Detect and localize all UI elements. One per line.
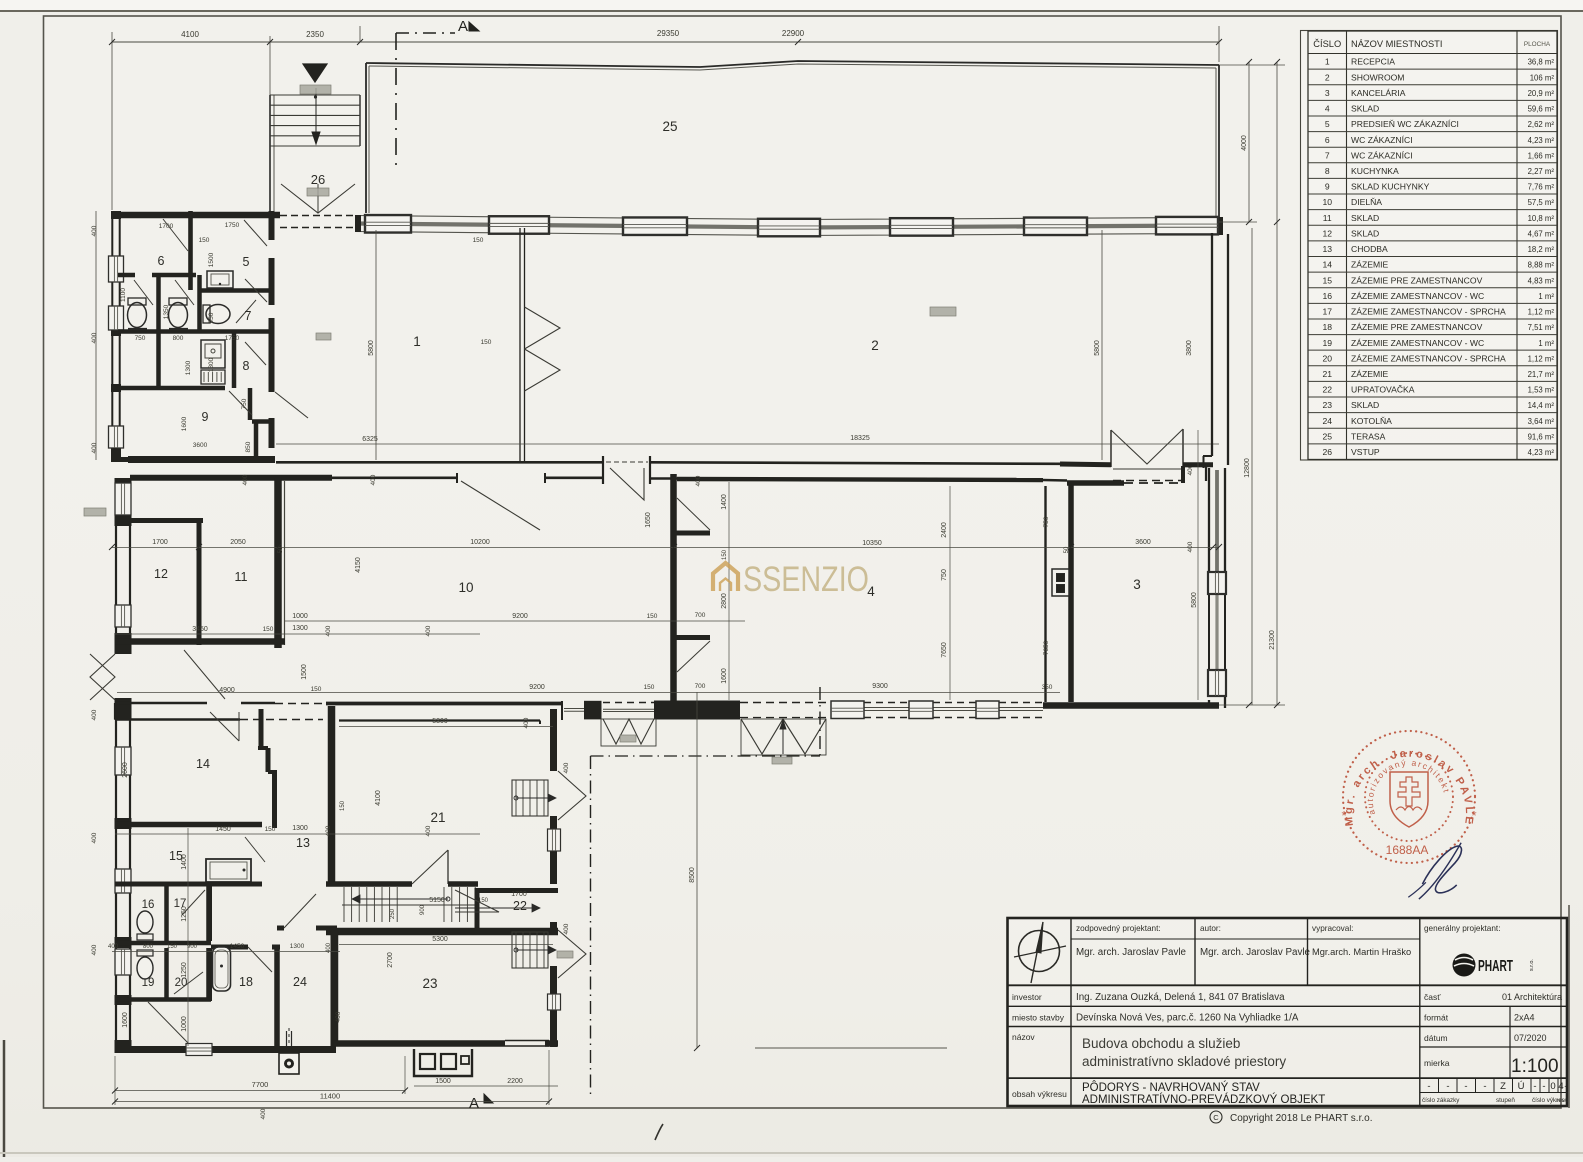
svg-text:9: 9 (202, 410, 209, 424)
svg-text:UPRATOVAČKA: UPRATOVAČKA (1351, 385, 1415, 395)
svg-text:1450: 1450 (215, 826, 231, 833)
svg-text:26: 26 (311, 172, 325, 187)
svg-text:vypracoval:: vypracoval: (1312, 924, 1353, 933)
svg-text:-: - (1464, 1081, 1467, 1092)
svg-text:3450: 3450 (192, 626, 208, 633)
svg-text:6: 6 (1325, 135, 1330, 145)
svg-text:12: 12 (154, 567, 168, 581)
svg-text:7: 7 (1325, 150, 1330, 160)
svg-text:-: - (1446, 1081, 1449, 1092)
svg-text:4: 4 (1325, 104, 1330, 114)
svg-text:50: 50 (1064, 546, 1070, 553)
svg-text:generálny projektant:: generálny projektant: (1424, 924, 1500, 933)
svg-text:4100: 4100 (181, 30, 199, 39)
svg-text:SKLAD: SKLAD (1351, 400, 1379, 410)
svg-text:20,9 m²: 20,9 m² (1528, 89, 1555, 98)
svg-text:18325: 18325 (850, 435, 870, 442)
svg-text:1,66 m²: 1,66 m² (1528, 151, 1555, 160)
svg-text:22: 22 (1322, 385, 1332, 395)
svg-text:číslo zákazky: číslo zákazky (1422, 1097, 1460, 1104)
svg-text:KUCHYNKA: KUCHYNKA (1351, 166, 1399, 176)
svg-text:150: 150 (340, 800, 346, 811)
svg-text:SKLAD: SKLAD (1351, 104, 1379, 114)
svg-text:KOTOLŇA: KOTOLŇA (1351, 416, 1392, 426)
svg-text:1: 1 (413, 334, 421, 349)
svg-text:1: 1 (1325, 57, 1330, 67)
svg-text:2700: 2700 (387, 952, 394, 968)
svg-text:1250: 1250 (181, 906, 188, 922)
svg-text:21,7 m²: 21,7 m² (1528, 370, 1555, 379)
svg-text:2xA4: 2xA4 (1514, 1013, 1535, 1023)
svg-text:2200: 2200 (507, 1078, 523, 1085)
svg-text:0: 0 (1550, 1081, 1555, 1092)
svg-text:24: 24 (1322, 416, 1332, 426)
svg-text:12800: 12800 (1244, 458, 1251, 478)
svg-text:PÔDORYS - NAVRHOVANÝ STAV: PÔDORYS - NAVRHOVANÝ STAV (1082, 1081, 1260, 1094)
svg-text:400: 400 (325, 625, 332, 636)
svg-text:5300: 5300 (432, 936, 448, 943)
svg-text:150: 150 (478, 898, 489, 904)
svg-text:1500: 1500 (208, 252, 215, 267)
svg-text:7,76 m²: 7,76 m² (1528, 183, 1555, 192)
svg-text:3800: 3800 (1186, 340, 1193, 356)
svg-text:106 m²: 106 m² (1530, 73, 1555, 82)
svg-text:Copyright 2018 Le PHART s.r.o.: Copyright 2018 Le PHART s.r.o. (1230, 1113, 1373, 1124)
svg-text:400: 400 (695, 475, 702, 486)
svg-text:Ing. Zuzana Ouzká, Delená 1, 8: Ing. Zuzana Ouzká, Delená 1, 841 07 Brat… (1076, 992, 1285, 1003)
svg-text:2,27 m²: 2,27 m² (1528, 167, 1555, 176)
svg-text:s.r.o.: s.r.o. (1529, 959, 1535, 971)
svg-text:Mgr. arch. Jaroslav Pavle: Mgr. arch. Jaroslav Pavle (1200, 947, 1311, 958)
svg-text:700: 700 (695, 683, 706, 690)
svg-text:rev: rev (1557, 1098, 1565, 1104)
svg-text:12: 12 (1322, 228, 1332, 238)
svg-text:400: 400 (91, 944, 98, 955)
svg-text:4150: 4150 (355, 557, 362, 573)
svg-text:ADMINISTRATÍVNO-PREVÁDZKOVÝ OB: ADMINISTRATÍVNO-PREVÁDZKOVÝ OBJEKT (1082, 1093, 1325, 1106)
svg-text:59,6 m²: 59,6 m² (1528, 105, 1555, 114)
svg-text:2600: 2600 (122, 762, 129, 778)
svg-text:20: 20 (175, 977, 188, 989)
svg-text:9200: 9200 (512, 613, 528, 620)
svg-text:SKLAD KUCHYNKY: SKLAD KUCHYNKY (1351, 182, 1430, 192)
svg-text:1:100: 1:100 (1511, 1056, 1559, 1077)
svg-text:9200: 9200 (529, 684, 545, 691)
svg-text:25: 25 (1322, 431, 1332, 441)
svg-text:SKLAD: SKLAD (1351, 228, 1379, 238)
svg-text:4100: 4100 (375, 790, 382, 806)
svg-text:SKLAD: SKLAD (1351, 213, 1379, 223)
svg-text:administratívno skladové pries: administratívno skladové priestory (1082, 1054, 1286, 1069)
svg-text:400: 400 (91, 225, 98, 236)
svg-text:zodpovedný projektant:: zodpovedný projektant: (1076, 924, 1161, 933)
svg-text:1700: 1700 (159, 223, 174, 230)
svg-text:400: 400 (326, 942, 332, 953)
svg-text:Mgr.arch. Martin Hraško: Mgr.arch. Martin Hraško (1312, 947, 1411, 957)
svg-text:36,8 m²: 36,8 m² (1528, 58, 1555, 67)
svg-text:11: 11 (235, 570, 248, 584)
svg-text:1300: 1300 (292, 825, 308, 832)
svg-text:ZÁZEMIE: ZÁZEMIE (1351, 369, 1389, 379)
svg-text:mierka: mierka (1424, 1058, 1450, 1068)
svg-text:formát: formát (1424, 1013, 1449, 1023)
svg-text:8500: 8500 (689, 867, 696, 883)
svg-text:autor:: autor: (1200, 924, 1221, 933)
svg-text:9300: 9300 (872, 683, 888, 690)
svg-text:150: 150 (265, 826, 276, 833)
svg-text:01 Architektúra: 01 Architektúra (1502, 992, 1562, 1002)
svg-text:1600: 1600 (122, 1012, 129, 1028)
svg-text:4,67 m²: 4,67 m² (1528, 229, 1555, 238)
svg-text:A: A (469, 1095, 479, 1112)
svg-text:1700: 1700 (511, 891, 527, 898)
svg-text:18: 18 (1322, 322, 1332, 332)
svg-text:4000: 4000 (1241, 135, 1248, 151)
svg-text:Ú: Ú (1518, 1081, 1525, 1092)
svg-text:SHOWROOM: SHOWROOM (1351, 72, 1404, 82)
svg-text:1400: 1400 (721, 494, 728, 510)
svg-text:2: 2 (871, 338, 879, 353)
svg-text:400: 400 (563, 762, 570, 773)
svg-text:1300: 1300 (185, 360, 192, 375)
svg-text:150: 150 (199, 237, 210, 244)
svg-text:400: 400 (425, 625, 432, 636)
svg-text:5: 5 (243, 255, 250, 269)
svg-text:1650: 1650 (645, 512, 652, 528)
svg-text:150: 150 (167, 944, 178, 950)
svg-text:14: 14 (196, 757, 210, 771)
svg-text:7,51 m²: 7,51 m² (1528, 323, 1555, 332)
svg-text:1 m²: 1 m² (1538, 339, 1554, 348)
svg-text:4,23 m²: 4,23 m² (1528, 136, 1555, 145)
svg-text:750: 750 (941, 569, 948, 581)
svg-text:-: - (1427, 1081, 1430, 1092)
svg-text:900: 900 (420, 904, 426, 915)
svg-text:5800: 5800 (1191, 592, 1198, 608)
svg-text:750: 750 (241, 398, 248, 409)
svg-text:1600: 1600 (721, 668, 728, 684)
svg-text:150: 150 (311, 686, 322, 693)
svg-text:-: - (1533, 1081, 1536, 1092)
svg-text:2,62 m²: 2,62 m² (1528, 120, 1555, 129)
svg-text:750: 750 (135, 335, 146, 342)
svg-text:názov: názov (1012, 1032, 1035, 1042)
svg-text:400: 400 (242, 474, 249, 485)
svg-text:8,88 m²: 8,88 m² (1528, 261, 1555, 270)
svg-text:1,12 m²: 1,12 m² (1528, 354, 1555, 363)
svg-text:400: 400 (425, 825, 432, 836)
svg-text:400: 400 (370, 474, 377, 485)
svg-text:400: 400 (108, 944, 119, 950)
svg-text:ZÁZEMIE ZAMESTNANCOV - SPRCHA: ZÁZEMIE ZAMESTNANCOV - SPRCHA (1351, 307, 1506, 317)
svg-text:5: 5 (1325, 119, 1330, 129)
svg-text:miesto stavby: miesto stavby (1012, 1013, 1065, 1023)
svg-text:KANCELÁRIA: KANCELÁRIA (1351, 88, 1406, 98)
svg-text:1000: 1000 (181, 1016, 188, 1032)
svg-text:SSENZIO: SSENZIO (743, 560, 869, 599)
svg-text:10: 10 (1322, 197, 1332, 207)
svg-text:1250: 1250 (181, 962, 188, 978)
svg-text:4900: 4900 (219, 687, 235, 694)
svg-text:2800: 2800 (721, 593, 728, 609)
svg-text:150: 150 (481, 339, 492, 346)
svg-text:Budova obchodu a služieb: Budova obchodu a služieb (1082, 1036, 1240, 1051)
svg-text:1688AA: 1688AA (1386, 843, 1429, 857)
svg-text:11: 11 (1323, 213, 1332, 223)
svg-text:29350: 29350 (657, 29, 680, 38)
svg-text:21300: 21300 (1269, 630, 1276, 650)
svg-text:ZÁZEMIE ZAMESTNANCOV - SPRCHA: ZÁZEMIE ZAMESTNANCOV - SPRCHA (1351, 353, 1506, 363)
svg-text:150: 150 (473, 237, 484, 244)
svg-text:150: 150 (644, 684, 655, 691)
svg-text:150: 150 (722, 549, 728, 560)
svg-text:10,8 m²: 10,8 m² (1528, 214, 1555, 223)
svg-text:CHODBA: CHODBA (1351, 244, 1388, 254)
svg-text:4,83 m²: 4,83 m² (1528, 276, 1555, 285)
svg-text:7650: 7650 (941, 642, 948, 658)
svg-text:1,53 m²: 1,53 m² (1528, 386, 1555, 395)
svg-text:8: 8 (243, 359, 250, 373)
svg-text:1400: 1400 (181, 854, 188, 870)
svg-text:950: 950 (208, 312, 215, 323)
svg-text:1450: 1450 (230, 943, 245, 950)
svg-text:WC ZÁKAZNÍCI: WC ZÁKAZNÍCI (1351, 150, 1413, 160)
svg-text:6325: 6325 (362, 436, 378, 443)
svg-text:22: 22 (513, 899, 527, 913)
svg-text:400: 400 (91, 332, 98, 343)
svg-text:*: * (1471, 808, 1476, 823)
svg-text:400: 400 (325, 825, 332, 836)
svg-text:ZÁZEMIE PRE ZAMESTNANCOV: ZÁZEMIE PRE ZAMESTNANCOV (1351, 322, 1483, 332)
svg-text:18: 18 (239, 975, 253, 989)
svg-text:ZÁZEMIE PRE ZAMESTNANCOV: ZÁZEMIE PRE ZAMESTNANCOV (1351, 275, 1483, 285)
svg-text:19: 19 (1322, 338, 1332, 348)
svg-text:4,23 m²: 4,23 m² (1528, 448, 1555, 457)
svg-text:5800: 5800 (1094, 340, 1101, 356)
svg-text:Devínska Nová Ves, parc.č. 126: Devínska Nová Ves, parc.č. 1260 Na Vyhli… (1076, 1013, 1299, 1024)
svg-text:8: 8 (1325, 166, 1330, 176)
svg-text:VSTUP: VSTUP (1351, 447, 1380, 457)
svg-text:DIELŇA: DIELŇA (1351, 197, 1382, 207)
svg-text:PHART: PHART (1478, 958, 1513, 975)
svg-text:11400: 11400 (320, 1092, 340, 1101)
svg-text:150: 150 (263, 626, 274, 633)
svg-text:3,64 m²: 3,64 m² (1528, 417, 1555, 426)
svg-text:7700: 7700 (252, 1080, 269, 1089)
svg-text:1100: 1100 (120, 288, 127, 302)
svg-text:9: 9 (1325, 182, 1330, 192)
svg-text:1300: 1300 (290, 943, 305, 950)
svg-text:3: 3 (1325, 88, 1330, 98)
svg-text:dátum: dátum (1424, 1033, 1448, 1043)
svg-text:5800: 5800 (368, 340, 375, 356)
svg-text:23: 23 (422, 976, 437, 991)
svg-text:A: A (458, 18, 468, 35)
svg-text:13: 13 (1322, 244, 1332, 254)
svg-text:13: 13 (296, 836, 310, 850)
svg-text:NÁZOV MIESTNOSTI: NÁZOV MIESTNOSTI (1351, 39, 1442, 49)
svg-text:ZÁZEMIE ZAMESTNANCOV - WC: ZÁZEMIE ZAMESTNANCOV - WC (1351, 338, 1484, 348)
svg-text:1750: 1750 (225, 222, 240, 229)
svg-text:400: 400 (1187, 541, 1194, 552)
svg-text:750: 750 (1043, 516, 1050, 527)
svg-text:7: 7 (245, 309, 252, 323)
svg-text:ZÁZEMIE: ZÁZEMIE (1351, 260, 1389, 270)
svg-text:*: * (1341, 808, 1346, 823)
svg-text:700: 700 (695, 612, 706, 619)
svg-text:PLOCHA: PLOCHA (1524, 41, 1551, 48)
svg-text:stupeň: stupeň (1496, 1097, 1515, 1104)
svg-text:7650: 7650 (1043, 640, 1050, 655)
svg-text:obsah výkresu: obsah výkresu (1012, 1089, 1067, 1099)
svg-text:10200: 10200 (470, 539, 490, 546)
svg-text:1500: 1500 (301, 664, 308, 680)
svg-text:3: 3 (1133, 577, 1141, 592)
svg-text:10: 10 (458, 580, 473, 595)
svg-text:1750: 1750 (225, 335, 240, 342)
svg-text:TERASA: TERASA (1351, 431, 1386, 441)
svg-text:07/2020: 07/2020 (1514, 1033, 1547, 1043)
svg-text:800: 800 (173, 335, 184, 342)
svg-text:21: 21 (430, 810, 445, 825)
svg-text:91,6 m²: 91,6 m² (1528, 432, 1555, 441)
svg-text:WC ZÁKAZNÍCI: WC ZÁKAZNÍCI (1351, 135, 1413, 145)
svg-text:-: - (1542, 1081, 1545, 1092)
svg-text:3600: 3600 (1135, 539, 1151, 546)
svg-text:350: 350 (1042, 684, 1053, 691)
svg-text:-: - (1564, 1081, 1567, 1092)
svg-text:3600: 3600 (193, 442, 208, 449)
svg-text:400: 400 (91, 442, 98, 453)
svg-text:2: 2 (1325, 72, 1330, 82)
svg-text:časť: časť (1424, 992, 1441, 1002)
svg-text:ČÍSLO: ČÍSLO (1313, 39, 1341, 49)
svg-text:22900: 22900 (782, 29, 805, 38)
svg-text:900: 900 (187, 944, 198, 950)
svg-text:24: 24 (293, 975, 307, 989)
svg-text:-: - (1483, 1081, 1486, 1092)
svg-text:400: 400 (523, 717, 530, 728)
svg-text:1000: 1000 (292, 613, 308, 620)
svg-text:800: 800 (143, 944, 154, 950)
svg-text:1300: 1300 (208, 357, 215, 372)
svg-text:PREDSIEŇ WC ZÁKAZNÍCI: PREDSIEŇ WC ZÁKAZNÍCI (1351, 119, 1459, 129)
svg-text:21: 21 (1322, 369, 1332, 379)
svg-text:250: 250 (390, 908, 396, 919)
svg-text:400: 400 (91, 832, 98, 843)
svg-text:1600: 1600 (181, 416, 188, 431)
svg-text:10350: 10350 (862, 540, 882, 547)
svg-text:15: 15 (1322, 275, 1332, 285)
svg-text:4: 4 (1558, 1081, 1563, 1092)
svg-text:26: 26 (1322, 447, 1332, 457)
svg-text:2050: 2050 (230, 539, 246, 546)
svg-text:investor: investor (1012, 992, 1042, 1002)
svg-text:400: 400 (260, 1108, 267, 1119)
svg-text:RECEPCIA: RECEPCIA (1351, 57, 1395, 67)
svg-text:1,12 m²: 1,12 m² (1528, 308, 1555, 317)
svg-text:150: 150 (647, 613, 658, 620)
svg-text:Z: Z (1500, 1081, 1506, 1092)
svg-text:57,5 m²: 57,5 m² (1528, 198, 1555, 207)
svg-text:50: 50 (278, 546, 284, 553)
svg-text:850: 850 (245, 441, 252, 452)
svg-text:400: 400 (563, 923, 570, 934)
svg-text:23: 23 (1322, 400, 1332, 410)
svg-text:14,4 m²: 14,4 m² (1528, 401, 1555, 410)
svg-text:1700: 1700 (152, 539, 168, 546)
svg-text:2350: 2350 (306, 30, 324, 39)
svg-text:20: 20 (1322, 353, 1332, 363)
svg-text:16: 16 (1322, 291, 1332, 301)
svg-text:1500: 1500 (435, 1078, 451, 1085)
svg-text:400: 400 (91, 709, 98, 720)
svg-text:400: 400 (335, 1011, 342, 1022)
svg-text:16: 16 (142, 899, 155, 911)
svg-text:18,2 m²: 18,2 m² (1528, 245, 1555, 254)
svg-text:5300: 5300 (432, 718, 448, 725)
svg-text:5150: 5150 (429, 897, 445, 904)
svg-text:ZÁZEMIE ZAMESTNANCOV - WC: ZÁZEMIE ZAMESTNANCOV - WC (1351, 291, 1484, 301)
svg-text:1350: 1350 (163, 304, 170, 319)
svg-text:1 m²: 1 m² (1538, 292, 1554, 301)
svg-text:25: 25 (662, 119, 677, 134)
svg-text:6: 6 (158, 254, 165, 268)
svg-text:1300: 1300 (292, 625, 308, 632)
svg-text:14: 14 (1322, 260, 1332, 270)
svg-text:C: C (1213, 1113, 1219, 1122)
svg-text:2400: 2400 (941, 522, 948, 538)
svg-text:Mgr. arch. Jaroslav Pavle: Mgr. arch. Jaroslav Pavle (1076, 947, 1187, 958)
svg-text:17: 17 (1322, 307, 1332, 317)
